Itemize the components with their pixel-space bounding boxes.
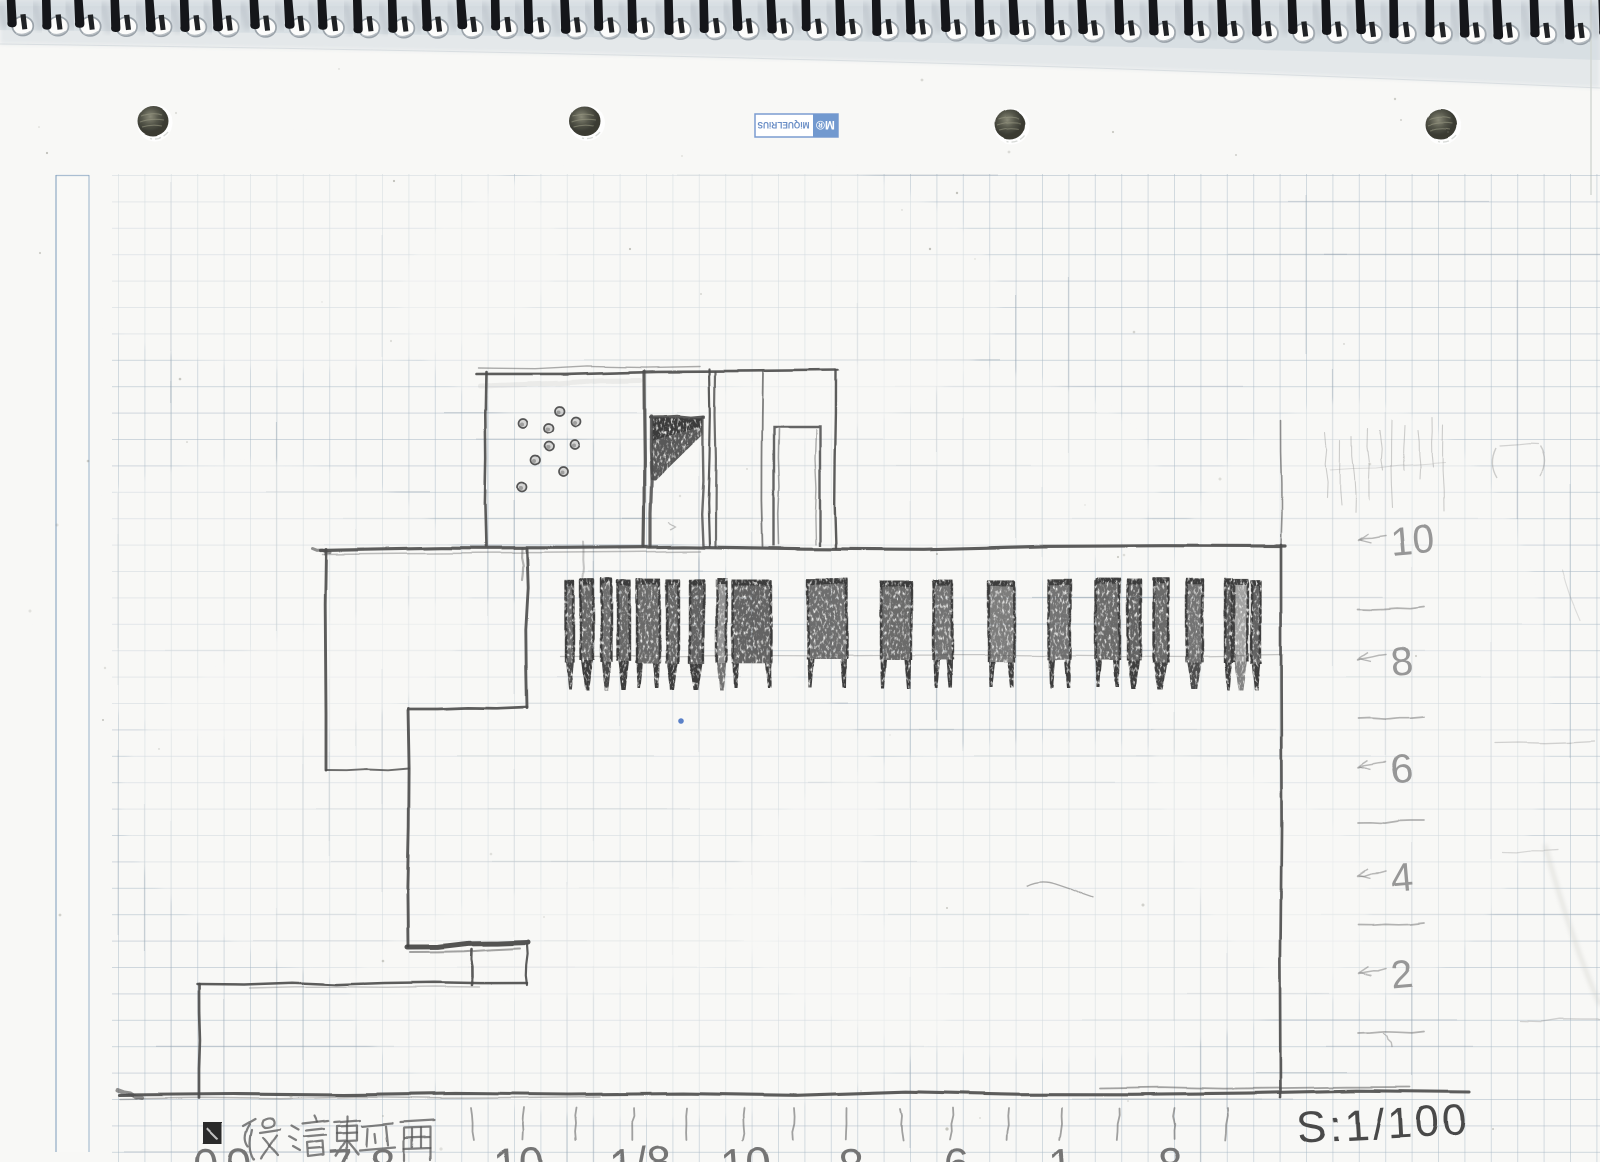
svg-text:6: 6 <box>942 1138 971 1162</box>
svg-text:10: 10 <box>719 1137 772 1162</box>
svg-text:6: 6 <box>1389 746 1415 792</box>
svg-text:0: 0 <box>192 1138 221 1162</box>
svg-text:MiQUELRiUS: MiQUELRiUS <box>758 119 810 130</box>
svg-text:4: 4 <box>1389 855 1415 901</box>
svg-text:1: 1 <box>1047 1138 1076 1162</box>
svg-text:7: 7 <box>327 1138 356 1162</box>
svg-text:8: 8 <box>1157 1138 1186 1162</box>
svg-text:10: 10 <box>492 1137 545 1162</box>
svg-text:8: 8 <box>369 1138 398 1162</box>
svg-text:M®: M® <box>816 118 835 132</box>
svg-text:0: 0 <box>225 1138 254 1162</box>
svg-text:1/8: 1/8 <box>607 1136 673 1162</box>
svg-text:8: 8 <box>837 1138 866 1162</box>
svg-text:2: 2 <box>1389 952 1415 998</box>
svg-text:8: 8 <box>1389 639 1415 685</box>
svg-text:10: 10 <box>1389 517 1437 565</box>
svg-text:S:1/100: S:1/100 <box>1296 1095 1471 1153</box>
